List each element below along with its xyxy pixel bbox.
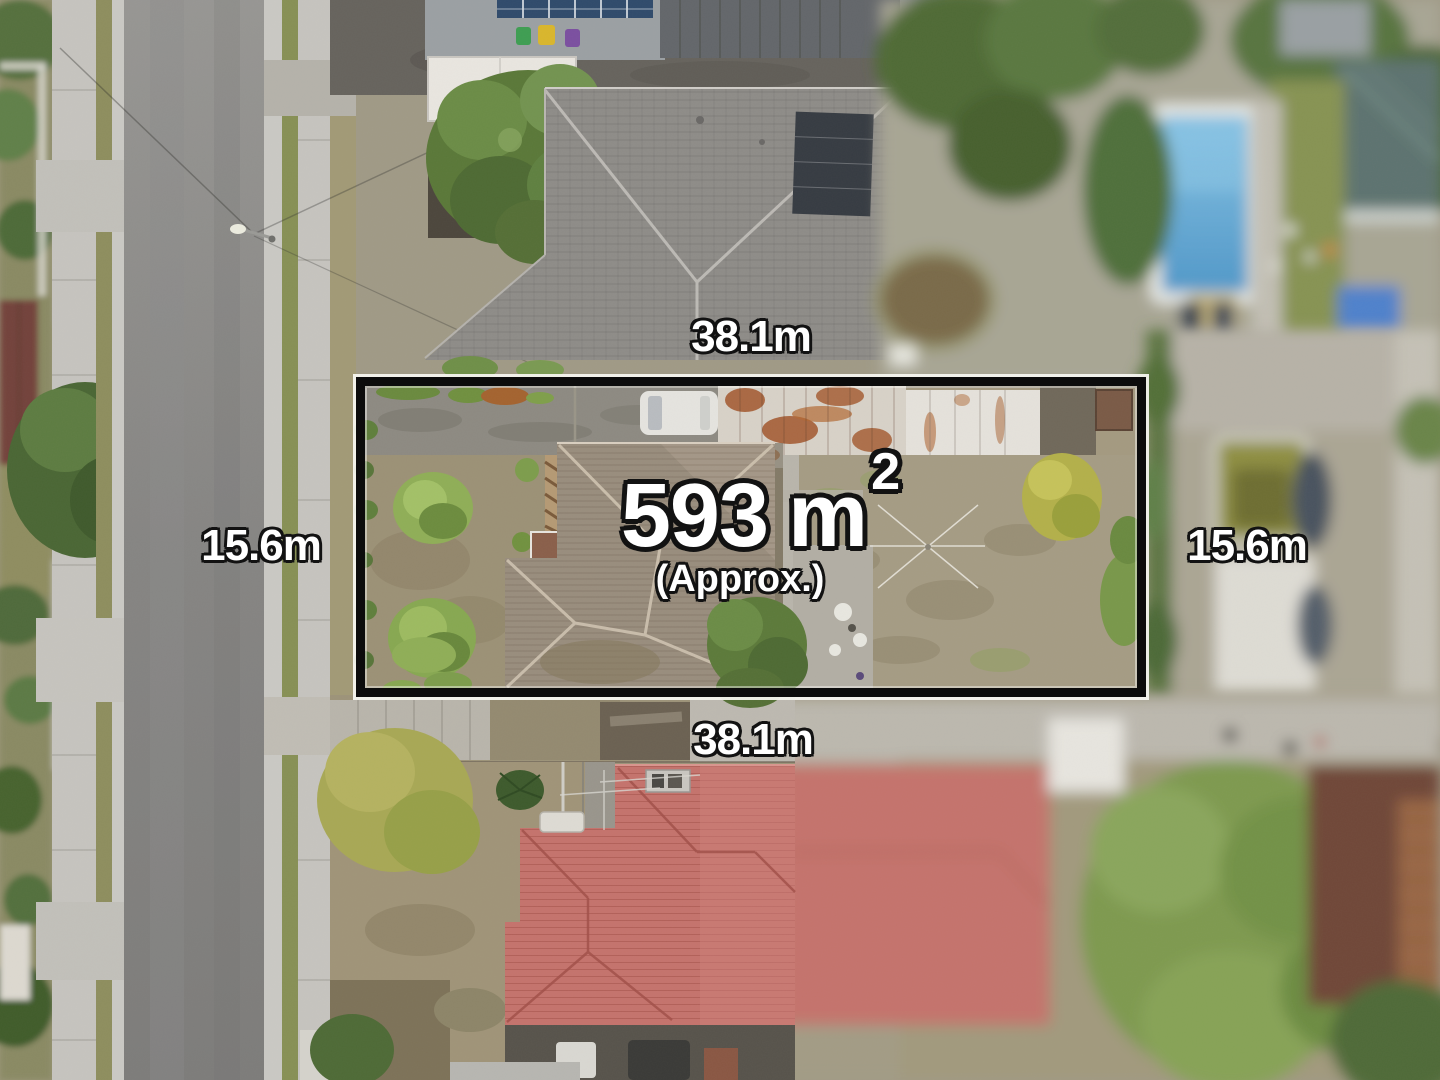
dimension-label-left: 15.6m	[201, 524, 321, 568]
area-approx-label: (Approx.)	[656, 560, 825, 598]
dimension-label-right: 15.6m	[1187, 524, 1307, 568]
aerial-photo: 38.1m 38.1m 15.6m 15.6m 593m2 (Approx.)	[0, 0, 1440, 1080]
area-label: 593m2	[621, 471, 899, 561]
dimension-label-top: 38.1m	[691, 315, 811, 359]
area-exponent: 2	[871, 443, 899, 501]
area-unit: m	[788, 466, 867, 566]
area-value: 593	[621, 466, 768, 566]
dimension-label-bottom: 38.1m	[693, 718, 813, 762]
